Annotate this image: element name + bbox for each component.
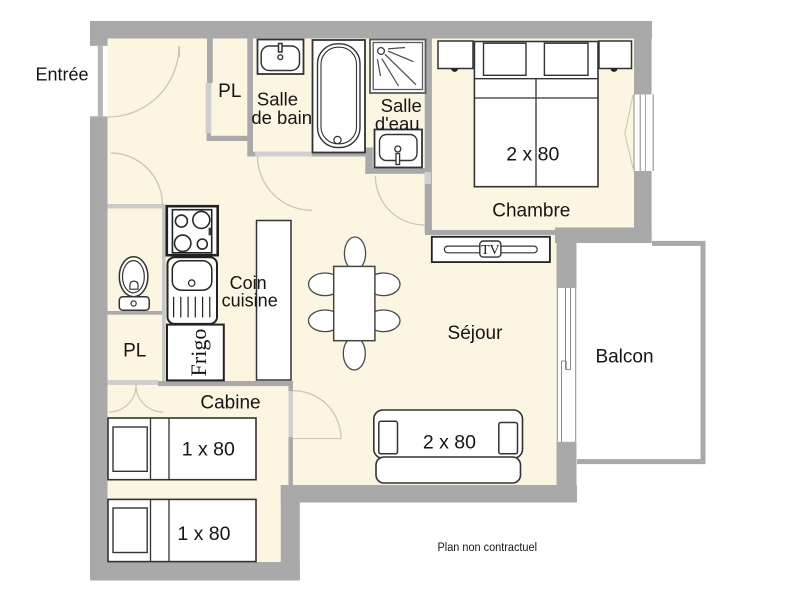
svg-text:Balcon: Balcon <box>595 347 653 368</box>
svg-text:1 x 80: 1 x 80 <box>177 523 230 545</box>
svg-text:PL: PL <box>218 81 241 102</box>
svg-text:d'eau: d'eau <box>375 113 420 134</box>
svg-text:PL: PL <box>123 341 146 362</box>
svg-text:1 x 80: 1 x 80 <box>182 438 235 460</box>
svg-text:Cabine: Cabine <box>200 392 260 413</box>
svg-text:Séjour: Séjour <box>448 323 504 344</box>
svg-text:cuisine: cuisine <box>222 291 278 311</box>
svg-text:Chambre: Chambre <box>492 201 570 222</box>
svg-text:2 x 80: 2 x 80 <box>423 432 476 454</box>
svg-text:Entrée: Entrée <box>35 64 88 84</box>
svg-text:de bain: de bain <box>251 107 312 128</box>
svg-text:2 x 80: 2 x 80 <box>506 143 559 165</box>
svg-text:TV: TV <box>481 243 500 258</box>
svg-text:Plan non contractuel: Plan non contractuel <box>438 540 538 554</box>
svg-text:Frigo: Frigo <box>186 329 211 377</box>
